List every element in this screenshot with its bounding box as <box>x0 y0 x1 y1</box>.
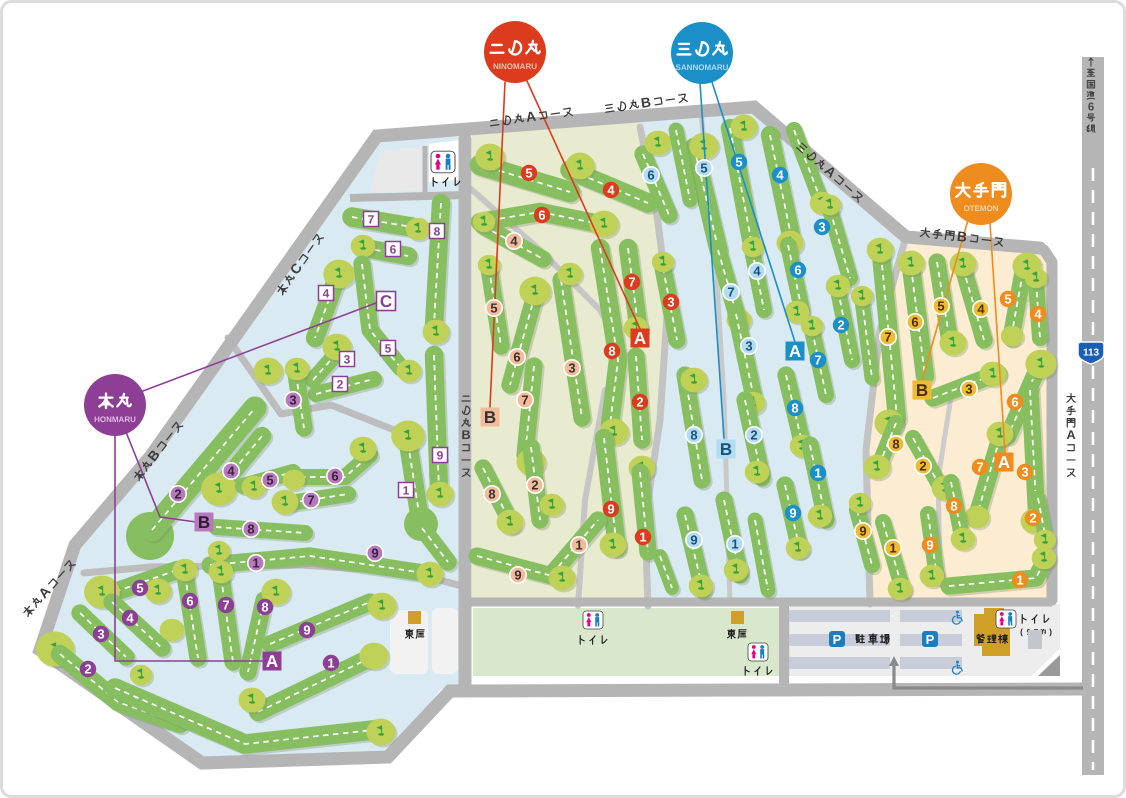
svg-text:HONMARU: HONMARU <box>94 415 136 424</box>
svg-text:(: ( <box>1020 628 1023 637</box>
svg-text:2: 2 <box>84 662 91 677</box>
svg-text:5: 5 <box>937 299 944 314</box>
svg-text:3: 3 <box>289 393 296 408</box>
svg-text:2: 2 <box>1029 511 1036 526</box>
svg-text:1: 1 <box>889 541 896 556</box>
svg-text:OTEMON: OTEMON <box>963 204 998 213</box>
svg-text:9: 9 <box>371 546 378 561</box>
svg-text:B: B <box>956 229 968 245</box>
svg-text:9: 9 <box>437 449 444 463</box>
svg-text:1: 1 <box>403 484 410 498</box>
svg-text:3: 3 <box>344 353 351 367</box>
svg-text:B: B <box>720 440 732 459</box>
svg-text:7: 7 <box>884 330 891 345</box>
svg-text:A: A <box>266 652 278 671</box>
svg-text:4: 4 <box>776 168 784 183</box>
svg-text:B: B <box>461 428 470 442</box>
svg-text:6: 6 <box>513 350 520 365</box>
svg-text:8: 8 <box>791 401 798 416</box>
svg-text:5: 5 <box>735 155 742 170</box>
svg-text:1: 1 <box>639 530 646 545</box>
svg-text:8: 8 <box>892 437 899 452</box>
svg-text:4: 4 <box>977 302 985 317</box>
svg-text:4: 4 <box>753 264 761 279</box>
svg-text:A: A <box>525 109 537 125</box>
svg-text:3: 3 <box>667 295 674 310</box>
svg-text:1: 1 <box>731 537 738 552</box>
svg-text:8: 8 <box>488 487 495 502</box>
svg-text:3: 3 <box>745 339 752 354</box>
svg-text:7: 7 <box>307 493 314 508</box>
svg-text:6: 6 <box>331 469 338 484</box>
svg-text:B: B <box>484 408 496 427</box>
svg-text:8: 8 <box>434 225 441 239</box>
svg-text:6: 6 <box>911 315 918 330</box>
svg-text:1: 1 <box>327 656 334 671</box>
svg-text:6: 6 <box>1088 101 1094 113</box>
svg-text:6: 6 <box>390 243 397 257</box>
svg-text:A: A <box>634 329 646 348</box>
svg-text:3: 3 <box>97 627 104 642</box>
svg-text:9: 9 <box>607 502 614 517</box>
svg-text:2: 2 <box>919 459 926 474</box>
svg-text:4: 4 <box>323 287 330 301</box>
svg-text:5: 5 <box>136 581 143 596</box>
svg-text:6: 6 <box>1011 395 1018 410</box>
svg-text:A: A <box>1066 428 1075 442</box>
svg-text:8: 8 <box>261 600 268 615</box>
svg-text:7: 7 <box>628 275 635 290</box>
svg-text:8: 8 <box>608 344 615 359</box>
svg-text:6: 6 <box>186 594 193 609</box>
svg-text:2: 2 <box>337 378 344 392</box>
svg-text:9: 9 <box>859 524 866 539</box>
svg-text:6: 6 <box>794 263 801 278</box>
svg-text:5: 5 <box>266 473 273 488</box>
svg-text:): ) <box>1049 628 1052 637</box>
svg-text:6: 6 <box>647 168 654 183</box>
svg-text:C: C <box>380 292 392 311</box>
svg-text:SANNOMARU: SANNOMARU <box>676 63 729 72</box>
svg-text:9: 9 <box>514 568 521 583</box>
svg-text:NINOMARU: NINOMARU <box>493 62 537 71</box>
svg-text:1: 1 <box>252 556 259 571</box>
svg-text:3: 3 <box>965 382 972 397</box>
svg-text:4: 4 <box>1034 307 1042 322</box>
svg-text:5: 5 <box>1004 292 1011 307</box>
svg-text:4: 4 <box>607 183 615 198</box>
svg-text:8: 8 <box>690 428 697 443</box>
svg-text:4: 4 <box>510 234 518 249</box>
svg-text:2: 2 <box>174 487 181 502</box>
svg-text:B: B <box>916 381 928 400</box>
svg-text:1: 1 <box>814 466 821 481</box>
svg-text:5: 5 <box>490 301 497 316</box>
svg-text:3: 3 <box>568 361 575 376</box>
svg-text:1: 1 <box>575 538 582 553</box>
svg-text:7: 7 <box>222 598 229 613</box>
svg-text:9: 9 <box>926 538 933 553</box>
svg-text:5: 5 <box>385 342 392 356</box>
svg-text:5: 5 <box>700 161 707 176</box>
svg-text:1: 1 <box>1016 573 1023 588</box>
svg-text:P: P <box>926 632 935 647</box>
svg-text:A: A <box>998 453 1010 472</box>
svg-text:9: 9 <box>690 533 697 548</box>
svg-text:8: 8 <box>247 522 254 537</box>
svg-text:7: 7 <box>727 285 734 300</box>
svg-text:7: 7 <box>976 460 983 475</box>
svg-text:9: 9 <box>303 623 310 638</box>
svg-text:3: 3 <box>1021 465 1028 480</box>
svg-text:7: 7 <box>521 393 528 408</box>
svg-text:8: 8 <box>950 499 957 514</box>
svg-text:A: A <box>789 342 801 361</box>
svg-text:4: 4 <box>227 464 235 479</box>
svg-text:4: 4 <box>126 611 134 626</box>
svg-text:B: B <box>640 95 652 111</box>
svg-text:7: 7 <box>368 213 375 227</box>
svg-text:P: P <box>833 632 842 647</box>
svg-text:9: 9 <box>789 506 796 521</box>
svg-text:113: 113 <box>1083 348 1100 359</box>
svg-text:5: 5 <box>525 166 532 181</box>
svg-text:2: 2 <box>837 318 844 333</box>
svg-text:2: 2 <box>750 428 757 443</box>
svg-text:B: B <box>198 513 210 532</box>
svg-text:2: 2 <box>531 478 538 493</box>
svg-text:3: 3 <box>818 220 825 235</box>
svg-text:7: 7 <box>814 353 821 368</box>
svg-text:2: 2 <box>636 395 643 410</box>
svg-text:6: 6 <box>538 208 545 223</box>
